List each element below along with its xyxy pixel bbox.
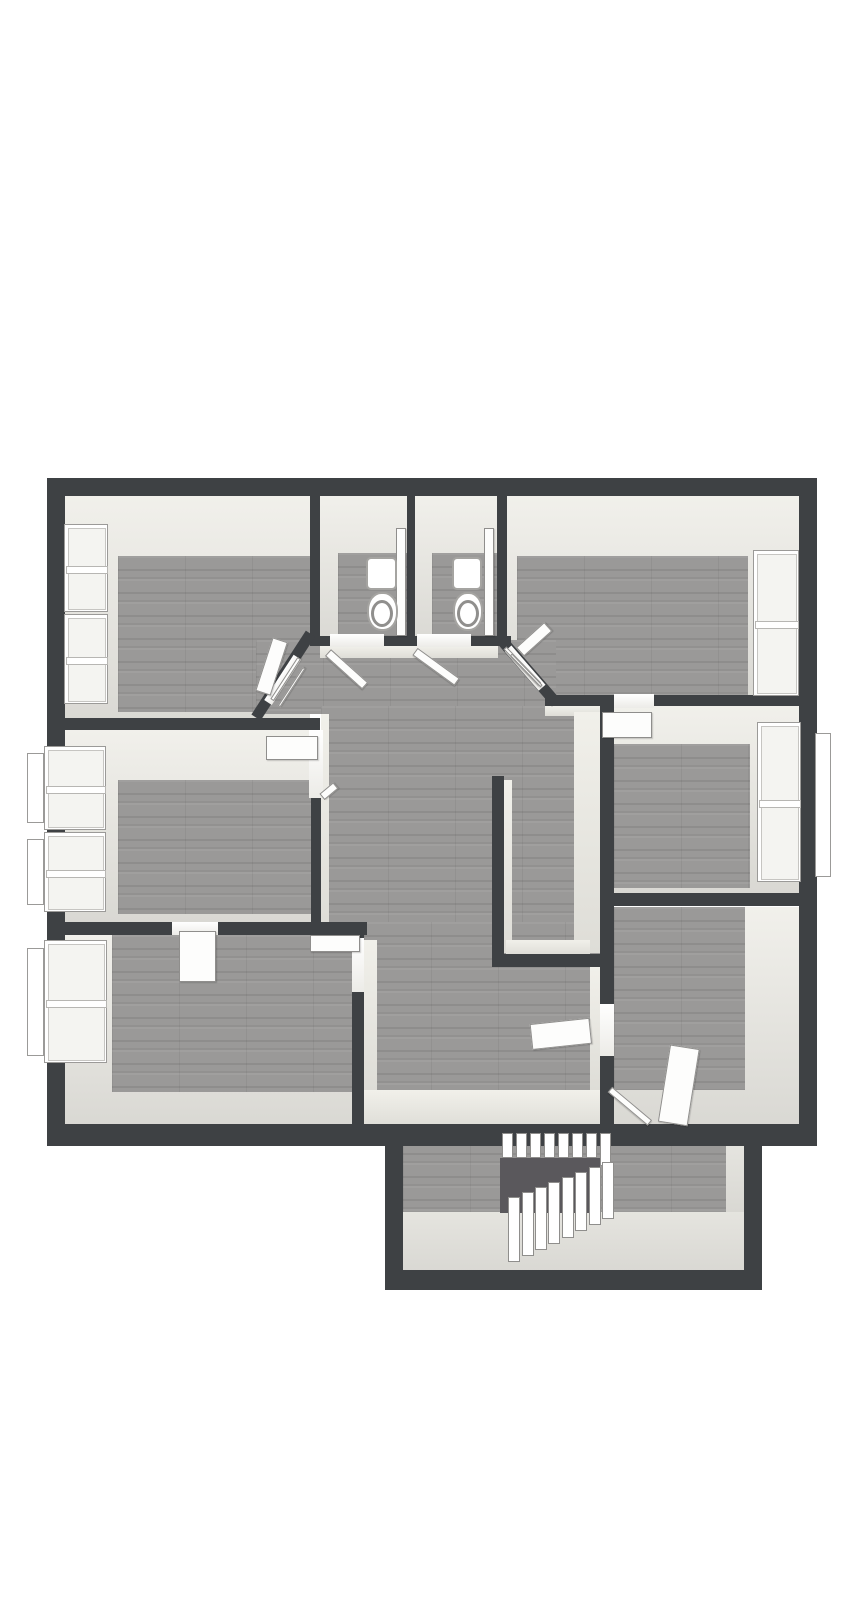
stair-top-step-2 bbox=[516, 1133, 527, 1158]
wall-stair-shaft-bottom bbox=[492, 954, 614, 967]
doorway-room-mid-right bbox=[614, 694, 654, 708]
wall-wc-left bbox=[310, 494, 320, 646]
stair-top-step-7 bbox=[586, 1133, 597, 1158]
outer-wall-top bbox=[47, 478, 817, 496]
doorway-wc-right bbox=[417, 634, 471, 647]
toilet-wc-right-seat-opening bbox=[457, 600, 479, 627]
window-mid-left-2-sash-bar bbox=[46, 870, 106, 878]
window-mid-right bbox=[757, 722, 801, 882]
stair-winder-step-4 bbox=[562, 1177, 574, 1238]
door-leaf-bottom-left-inner bbox=[179, 931, 216, 982]
window-bottom-left-outer-sill bbox=[27, 948, 44, 1056]
window-bottom-left bbox=[44, 940, 107, 1063]
stair-shaft-west-face bbox=[574, 712, 602, 953]
hallway-floor-mid bbox=[321, 706, 602, 935]
stair-hall-floor-light-right bbox=[726, 1146, 744, 1212]
outer-wall-bottom bbox=[47, 1124, 817, 1146]
hallway-face-below-wc bbox=[320, 646, 498, 658]
stair-top-step-1 bbox=[502, 1133, 513, 1158]
toilet-wc-left-tank bbox=[366, 557, 397, 590]
stair-winder-step-6 bbox=[535, 1187, 547, 1250]
window-top-left-1 bbox=[64, 524, 108, 612]
window-mid-right-outer-sill bbox=[815, 733, 831, 877]
toilet-wc-right-bowl bbox=[453, 592, 483, 631]
door-leaf-wc-left-inside bbox=[396, 528, 406, 636]
door-leaf-room-mid-left bbox=[266, 736, 318, 760]
window-mid-left-1-sash-bar bbox=[46, 786, 106, 794]
wall-stair-shaft-left bbox=[492, 776, 504, 967]
stair-shaft-inner-left-face bbox=[504, 780, 512, 953]
stair-winder-step-1 bbox=[602, 1162, 614, 1219]
stair-winder-step-2 bbox=[589, 1167, 601, 1225]
stair-winder-step-5 bbox=[548, 1182, 560, 1244]
stair-winder-step-3 bbox=[575, 1172, 587, 1231]
stair-top-step-4 bbox=[544, 1133, 555, 1158]
hallway-face-bottomleft-wall bbox=[364, 940, 377, 1090]
window-bottom-left-sash-bar bbox=[46, 1000, 107, 1008]
window-top-right-sash-bar bbox=[755, 621, 799, 629]
wall-hall-right bbox=[600, 706, 614, 1128]
floor-plan-3d-render bbox=[0, 0, 867, 1600]
window-mid-left-2-outer-sill bbox=[27, 839, 44, 905]
room-mid-left-floor bbox=[118, 780, 311, 914]
stair-top-step-3 bbox=[530, 1133, 541, 1158]
room-bottom-left-floor bbox=[112, 935, 352, 1092]
window-top-left-2-sash-bar bbox=[66, 657, 108, 665]
extension-wall-left bbox=[385, 1128, 403, 1290]
extension-wall-bottom bbox=[385, 1270, 762, 1290]
toilet-wc-right-tank bbox=[452, 557, 482, 590]
hallway-face-bottom bbox=[364, 1090, 602, 1128]
room-mid-right-floor bbox=[614, 744, 750, 888]
door-leaf-room-mid-right bbox=[602, 712, 652, 738]
doorway-wc-left bbox=[330, 634, 384, 647]
doorway-bottom-right bbox=[600, 1004, 614, 1056]
toilet-wc-left-seat-opening bbox=[371, 600, 393, 627]
wall-midright-bottom bbox=[600, 893, 799, 906]
stair-winder-step-8 bbox=[508, 1197, 520, 1262]
door-leaf-bottom-left-hall bbox=[310, 935, 360, 952]
wall-midleft-top bbox=[47, 718, 320, 730]
window-mid-left-1-outer-sill bbox=[27, 753, 44, 823]
wall-wc-right bbox=[497, 494, 507, 646]
extension-wall-right bbox=[744, 1128, 762, 1290]
window-mid-right-sash-bar bbox=[759, 800, 801, 808]
stair-shaft-north-face bbox=[506, 940, 590, 955]
stair-top-step-6 bbox=[572, 1133, 583, 1158]
window-top-left-2 bbox=[64, 614, 108, 704]
toilet-wc-left-bowl bbox=[367, 592, 398, 631]
stair-top-step-5 bbox=[558, 1133, 569, 1158]
window-top-left-1-sash-bar bbox=[66, 566, 108, 574]
wall-hall-left bbox=[311, 798, 321, 935]
window-top-right bbox=[753, 550, 799, 696]
door-leaf-wc-right-inside bbox=[484, 528, 494, 636]
stair-winder-step-7 bbox=[522, 1192, 534, 1256]
window-mid-left-1 bbox=[44, 746, 106, 830]
wall-wc-mid bbox=[407, 494, 415, 646]
wall-topright-bottom bbox=[545, 695, 799, 706]
window-mid-left-2 bbox=[44, 832, 106, 912]
